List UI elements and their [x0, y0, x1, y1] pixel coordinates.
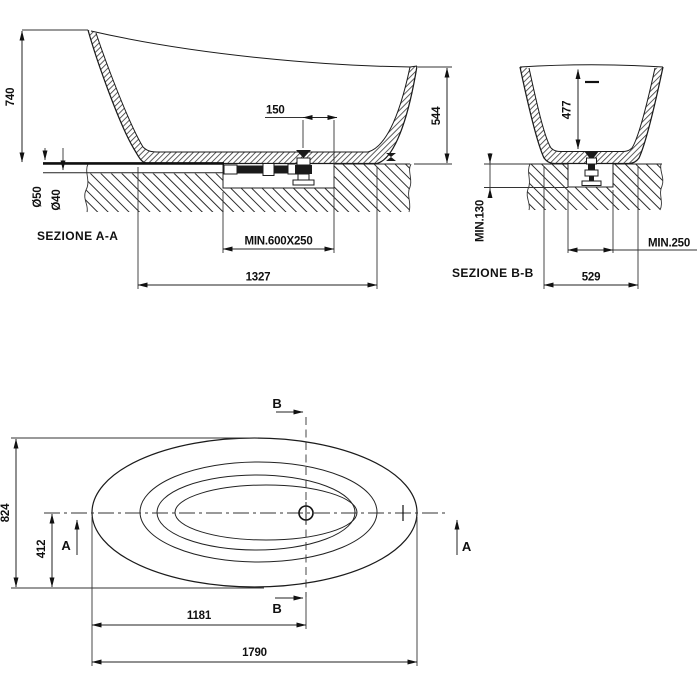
- tub-inner-profile-bb: [529, 68, 655, 152]
- callout-d40: Ø40: [51, 148, 63, 211]
- bathtub-technical-drawing: 740 544 150 Ø50 Ø40 MIN: [0, 0, 700, 700]
- plan-view: 824 412 A A B B 1181: [0, 396, 472, 666]
- tub-inner-profile-aa: [96, 33, 410, 152]
- tub-rim-outer: [92, 438, 417, 587]
- section-aa-title: SEZIONE A-A: [37, 229, 118, 243]
- dim-477-label: 477: [562, 101, 574, 120]
- cut-b-bottom-label: B: [272, 601, 281, 616]
- dim-544: 544: [414, 67, 452, 164]
- cut-a-right-label: A: [462, 539, 472, 554]
- section-aa-view: 740 544 150 Ø50 Ø40 MIN: [5, 30, 452, 289]
- cut-arrow-b-bottom: B: [272, 598, 303, 616]
- dim-529-label: 529: [582, 272, 601, 284]
- section-bb-title: SEZIONE B-B: [452, 266, 534, 280]
- cut-arrow-a-left: A: [61, 520, 77, 555]
- dim-544-label: 544: [431, 106, 443, 125]
- dim-1790-label: 1790: [242, 647, 267, 659]
- d40-label: Ø40: [51, 189, 63, 210]
- cut-b-top-label: B: [272, 396, 281, 411]
- tub-rim-sweep-aa: [91, 31, 411, 67]
- technical-drawing-page: 740 544 150 Ø50 Ø40 MIN: [0, 0, 700, 700]
- dim-1181-label: 1181: [187, 610, 212, 622]
- tub-basin-bottom: [175, 485, 357, 540]
- tub-rim-inner: [140, 462, 377, 562]
- d50-label: Ø50: [32, 186, 44, 207]
- dim-min130-label: MIN.130: [475, 200, 487, 242]
- tub-basin-top: [157, 475, 355, 550]
- callout-d50: Ø50: [32, 148, 45, 208]
- cut-a-left-label: A: [61, 538, 71, 553]
- dim-1327-label: 1327: [246, 272, 271, 284]
- dim-recess-aa-label: MIN.600X250: [244, 236, 312, 248]
- dim-min250-label: MIN.250: [648, 238, 690, 250]
- section-bb-view: 477 MIN.130 MIN.250 529 SEZIONE B-B: [452, 65, 697, 289]
- cut-arrow-a-right: A: [457, 520, 472, 555]
- dim-824-label: 824: [0, 503, 12, 522]
- dim-740: 740: [5, 30, 88, 162]
- cut-arrow-b-top: B: [272, 396, 303, 412]
- dim-1181: 1181: [92, 517, 306, 666]
- dim-740-label: 740: [5, 88, 17, 107]
- tub-shell-aa: [88, 30, 417, 164]
- dim-150-label: 150: [266, 105, 285, 117]
- tub-rim-top-bb: [520, 65, 663, 67]
- dim-412-label: 412: [36, 540, 48, 559]
- dim-477: 477: [562, 70, 579, 150]
- dim-412: 412: [36, 514, 52, 587]
